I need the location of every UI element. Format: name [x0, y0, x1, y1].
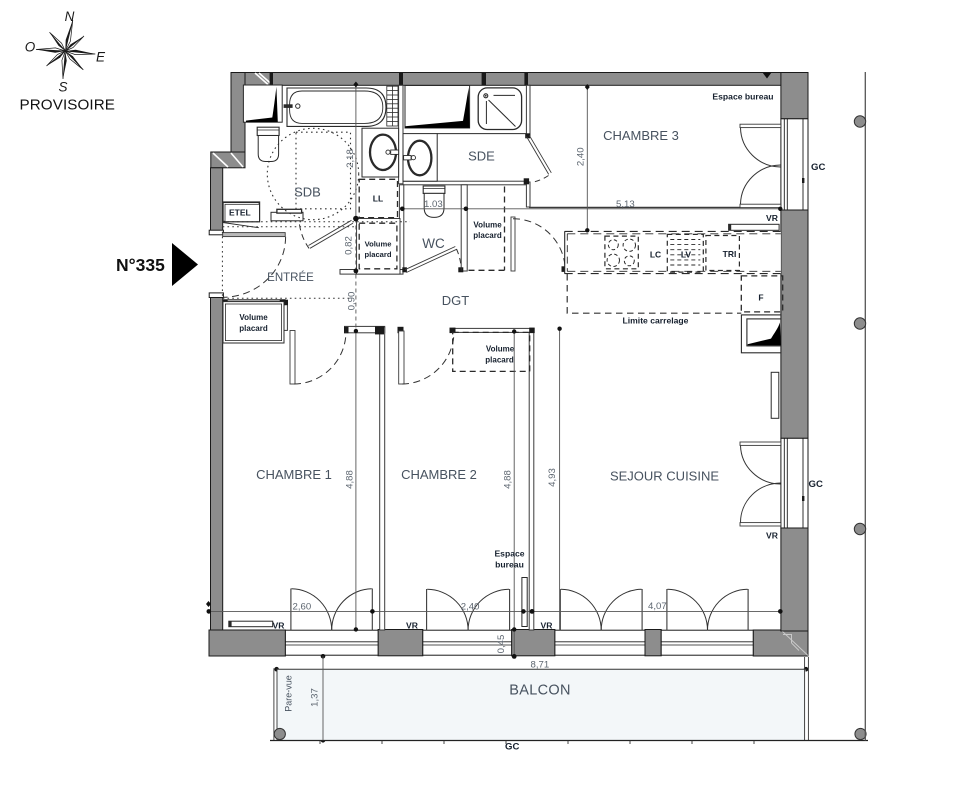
svg-text:O: O [25, 40, 36, 55]
svg-text:Volume: Volume [239, 313, 268, 322]
svg-text:E: E [96, 50, 106, 65]
svg-text:VR: VR [541, 621, 554, 631]
svg-text:bureau: bureau [495, 560, 524, 570]
svg-text:2,18: 2,18 [345, 149, 356, 168]
svg-text:Pare-vue: Pare-vue [284, 675, 294, 712]
svg-text:SEJOUR CUISINE: SEJOUR CUISINE [610, 469, 719, 484]
svg-text:DGT: DGT [442, 293, 470, 308]
svg-text:VR: VR [766, 213, 779, 223]
svg-text:Volume: Volume [365, 240, 392, 249]
svg-text:5,13: 5,13 [616, 199, 635, 210]
svg-text:GC: GC [811, 162, 825, 173]
svg-text:LV: LV [681, 250, 692, 260]
svg-text:1,37: 1,37 [310, 688, 321, 707]
svg-text:placard: placard [364, 250, 391, 259]
svg-text:VR: VR [406, 621, 419, 631]
svg-text:Limite carrelage: Limite carrelage [623, 316, 689, 326]
svg-text:4,93: 4,93 [547, 468, 558, 487]
svg-text:ENTRÉE: ENTRÉE [267, 271, 314, 284]
svg-text:WC: WC [422, 236, 445, 251]
svg-text:placard: placard [473, 231, 502, 240]
svg-text:S: S [58, 80, 67, 95]
svg-text:0,90: 0,90 [347, 292, 358, 311]
svg-text:TRI: TRI [723, 249, 737, 259]
svg-text:GC: GC [809, 479, 823, 490]
svg-text:BALCON: BALCON [509, 683, 570, 699]
svg-text:CHAMBRE 2: CHAMBRE 2 [401, 467, 477, 482]
svg-text:placard: placard [485, 356, 514, 365]
svg-text:placard: placard [239, 324, 268, 333]
svg-text:Volume: Volume [473, 220, 502, 229]
svg-text:1.03: 1.03 [424, 199, 443, 210]
svg-text:4,88: 4,88 [344, 470, 355, 489]
svg-text:F: F [758, 293, 763, 303]
svg-text:2,60: 2,60 [293, 602, 312, 613]
svg-text:Espace bureau: Espace bureau [712, 92, 773, 102]
svg-text:Volume: Volume [486, 345, 515, 354]
svg-text:Espace: Espace [494, 549, 524, 559]
svg-text:2,40: 2,40 [576, 147, 587, 166]
svg-text:PROVISOIRE: PROVISOIRE [20, 97, 116, 114]
svg-text:0,82: 0,82 [344, 236, 355, 255]
svg-text:CHAMBRE 3: CHAMBRE 3 [603, 128, 679, 143]
svg-text:2,40: 2,40 [461, 602, 480, 613]
svg-text:SDE: SDE [468, 148, 495, 163]
svg-text:GC: GC [505, 742, 519, 753]
svg-text:CHAMBRE 1: CHAMBRE 1 [256, 467, 332, 482]
svg-text:VR: VR [273, 621, 286, 631]
svg-text:SDB: SDB [294, 184, 321, 199]
svg-text:N: N [65, 9, 75, 24]
svg-text:VR: VR [766, 531, 779, 541]
svg-text:N°335: N°335 [116, 255, 165, 275]
svg-text:4,07: 4,07 [648, 601, 667, 612]
svg-text:ETEL: ETEL [229, 208, 251, 218]
svg-text:LL: LL [373, 194, 383, 204]
svg-text:4,88: 4,88 [503, 470, 514, 489]
svg-text:LC: LC [650, 250, 661, 260]
svg-text:8,71: 8,71 [531, 659, 550, 670]
svg-text:0,45: 0,45 [496, 635, 507, 654]
